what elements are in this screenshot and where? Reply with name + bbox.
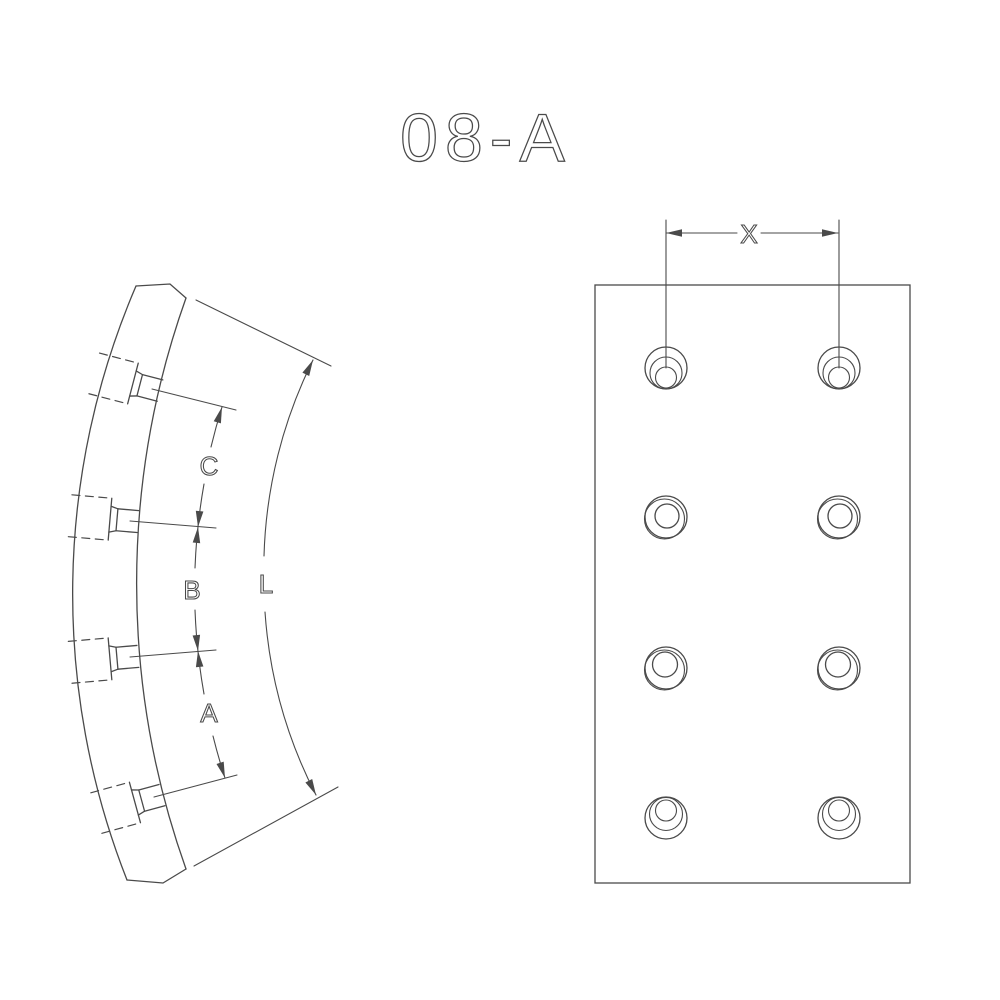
dim-arc-l-lower: [265, 612, 316, 795]
dim-label-x: X: [740, 219, 757, 249]
technical-drawing: 08-A: [0, 0, 1000, 1000]
inner-arc: [137, 298, 186, 869]
arrowhead: [666, 229, 682, 237]
dim-label-a: A: [200, 698, 218, 728]
arrowhead: [217, 762, 226, 778]
bottom-end-cap: [127, 869, 186, 883]
top-end-cap: [136, 284, 186, 298]
drawing-sheet: 08-A: [0, 0, 1000, 1000]
drawing-title: 08-A: [400, 100, 572, 176]
dim-label-l: L: [259, 569, 273, 599]
plan-hole-r2c1: [645, 496, 688, 539]
ext-line-hole1: [152, 389, 236, 410]
dim-label-b: B: [183, 575, 200, 605]
side-hole-4: [91, 775, 168, 833]
plan-hole-r4c2: [818, 797, 860, 839]
dim-arc-l-upper: [264, 360, 313, 556]
arrowhead: [193, 635, 201, 651]
lining-outline: [595, 285, 910, 883]
dim-label-c: C: [200, 451, 219, 481]
arrowhead: [196, 651, 204, 667]
arrowhead: [214, 407, 222, 423]
plan-hole-r3c1: [645, 647, 688, 690]
ext-line-hole3: [130, 650, 216, 657]
dimension-x: X: [666, 219, 839, 368]
drawing-root: 08-A: [68, 100, 910, 883]
arrowhead: [193, 527, 201, 543]
side-hole-1: [89, 353, 165, 411]
plan-hole-r2c2: [818, 496, 861, 539]
arrowhead: [305, 779, 316, 795]
plan-hole-r3c2: [818, 647, 861, 690]
ext-line-top-end: [196, 300, 331, 366]
arrowhead: [196, 511, 204, 527]
dimension-cba: C B A: [130, 389, 237, 797]
outer-arc: [73, 286, 136, 880]
side-hole-3: [68, 635, 139, 683]
arrowhead: [822, 229, 838, 237]
ext-line-hole2: [130, 521, 216, 528]
plan-view: [595, 285, 910, 883]
ext-line-bottom-end: [194, 787, 338, 866]
side-hole-2: [68, 495, 139, 543]
plan-hole-r4c1: [645, 797, 687, 839]
arrowhead: [302, 360, 313, 376]
